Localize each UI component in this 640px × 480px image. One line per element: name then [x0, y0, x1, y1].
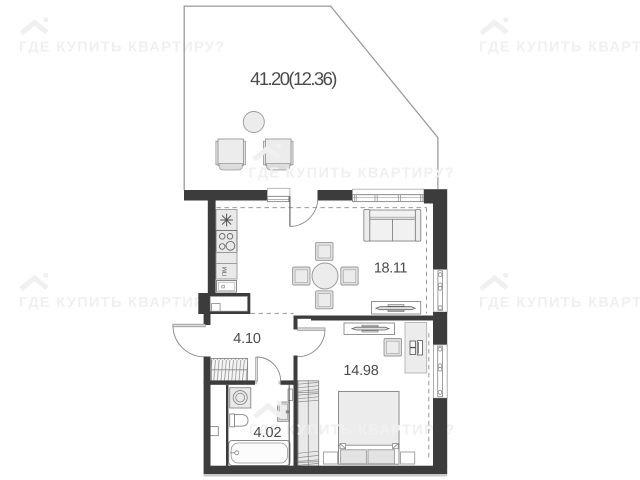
svg-text:14.98: 14.98 — [343, 363, 378, 379]
svg-text:4.02: 4.02 — [253, 425, 281, 441]
svg-text:ГДЕ КУПИТЬ КВАРТИРУ?: ГДЕ КУПИТЬ КВАРТИРУ? — [249, 166, 455, 182]
svg-text:18.11: 18.11 — [374, 261, 408, 277]
svg-text:ПМ: ПМ — [222, 267, 229, 276]
svg-text:ГДЕ КУПИТЬ КВАРТИРУ?: ГДЕ КУПИТЬ КВАРТИРУ? — [19, 295, 225, 311]
svg-text:ГДЕ КУПИТЬ КВАРТИРУ?: ГДЕ КУПИТЬ КВАРТИРУ? — [479, 40, 640, 56]
svg-text:ГДЕ КУПИТЬ КВАРТИРУ?: ГДЕ КУПИТЬ КВАРТИРУ? — [19, 40, 225, 56]
svg-text:4.10: 4.10 — [233, 331, 261, 347]
svg-text:41.20(12.36): 41.20(12.36) — [250, 68, 337, 89]
svg-text:ГДЕ КУПИТЬ КВАРТИРУ?: ГДЕ КУПИТЬ КВАРТИРУ? — [479, 295, 640, 311]
